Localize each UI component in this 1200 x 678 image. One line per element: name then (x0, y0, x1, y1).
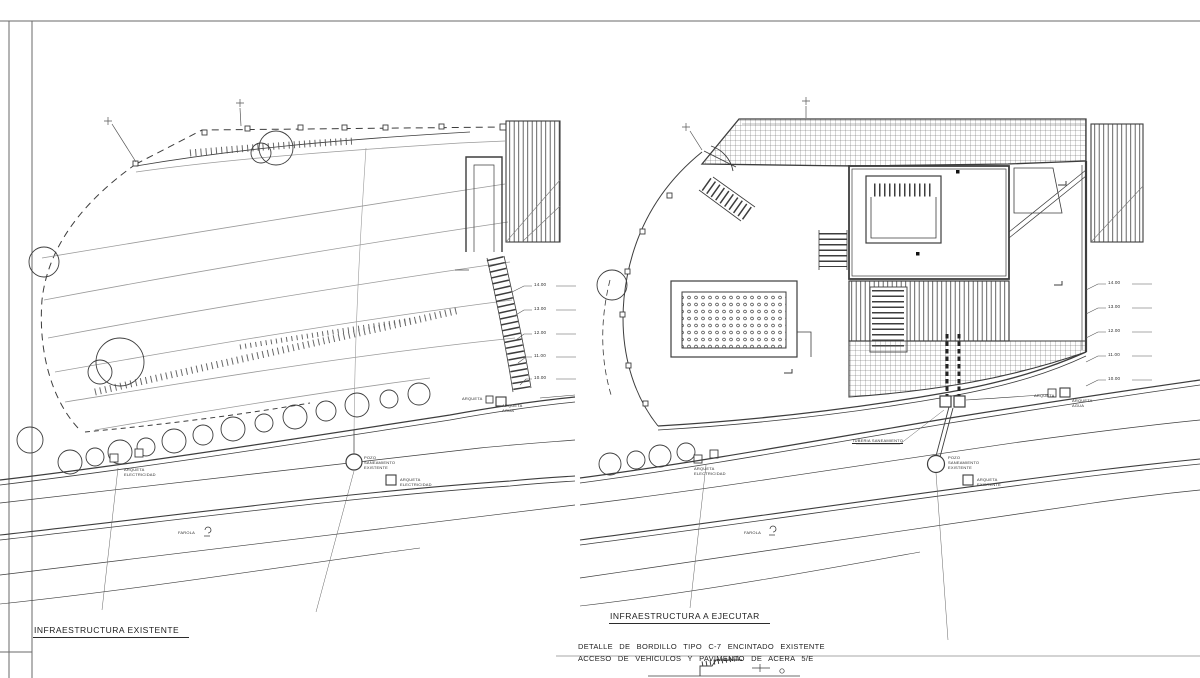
sheet-caption: DETALLE DE BORDILLO TIPO C-7 ENCINTADO E… (578, 641, 825, 665)
road-left (0, 397, 575, 604)
drawing-sheet: POZO SANEAMIENTO EXISTENTE ARQUETA ELECT… (0, 0, 1200, 678)
right-plan-geometry (580, 97, 1200, 640)
arqueta-agua-label-right: ARQUETA AGUA (1072, 398, 1092, 408)
pozo-label-right: POZO SANEAMIENTO EXISTENTE (948, 455, 979, 470)
elevation-label: 13.00 (534, 306, 546, 311)
pozo-saneamiento-symbol-right (928, 456, 945, 473)
fence-posts (133, 124, 506, 166)
caption-line-1: DETALLE DE BORDILLO TIPO C-7 ENCINTADO E… (578, 641, 825, 653)
elevation-label: 14.00 (1108, 280, 1120, 285)
slope-hatching (95, 141, 460, 392)
boundary-right (603, 152, 1086, 430)
farola-label-left: FAROLA (178, 530, 195, 535)
arqueta-existente-symbol (963, 475, 973, 485)
tuberia-label-right: TUBERIA SANEAMIENTO (852, 438, 903, 444)
farola-symbol (204, 527, 211, 536)
arqueta-agua-label-left: ARQUETA AGUA (502, 403, 522, 413)
contour-lines (42, 141, 515, 452)
pozo-saneamiento-symbol (346, 454, 362, 470)
elevation-label: 11.00 (534, 353, 546, 358)
arqueta-electricidad-label-right: ARQUETA ELECTRICIDAD (694, 466, 726, 476)
pozo-label-left: POZO SANEAMIENTO EXISTENTE (364, 455, 395, 470)
elevation-label: 13.00 (1108, 304, 1120, 309)
building (819, 166, 1009, 279)
retaining-wall (455, 157, 502, 270)
elevation-leaders-right (1086, 284, 1152, 386)
survey-markers (104, 99, 244, 162)
existing-stairs (487, 256, 531, 392)
driveway-band (702, 119, 1086, 166)
utilities-left (102, 395, 575, 612)
neighbour-structure-right (1091, 124, 1143, 242)
caption-line-2: ACCESO DE VEHICULOS Y PAVIMENTO DE ACERA… (578, 653, 825, 665)
left-plan-geometry (0, 99, 576, 612)
arqueta-label-left: ARQUETA (462, 396, 482, 401)
arqueta-electricidad-road-label-left: ARQUETA ELECTRICIDAD (400, 477, 432, 487)
fence-line (136, 132, 470, 166)
road-right (580, 380, 1200, 606)
boundary-dashed (41, 127, 505, 432)
site-plan-drawing (0, 0, 1200, 678)
farola-symbol-right (769, 526, 776, 535)
arqueta-road-symbol (386, 475, 396, 485)
elevation-label: 11.00 (1108, 352, 1120, 357)
arqueta-electricidad-trees-label-left: ARQUETA ELECTRICIDAD (124, 467, 156, 477)
elevation-label: 10.00 (1108, 376, 1120, 381)
arqueta-label-right: ARQUETA (1034, 393, 1054, 398)
left-plan-title: INFRAESTRUCTURA EXISTENTE (33, 625, 189, 638)
elevation-label: 10.00 (534, 375, 546, 380)
elevation-label: 12.00 (534, 330, 546, 335)
arqueta-existente-label-right: ARQUETA EXISTENTE (977, 477, 1001, 487)
trees (17, 131, 293, 453)
paved-pad (671, 281, 811, 357)
right-plan-title: INFRAESTRUCTURA A EJECUTAR (609, 611, 770, 624)
farola-label-right: FAROLA (744, 530, 761, 535)
elevation-label: 12.00 (1108, 328, 1120, 333)
neighbour-structure (506, 121, 560, 242)
elevation-label: 14.00 (534, 282, 546, 287)
